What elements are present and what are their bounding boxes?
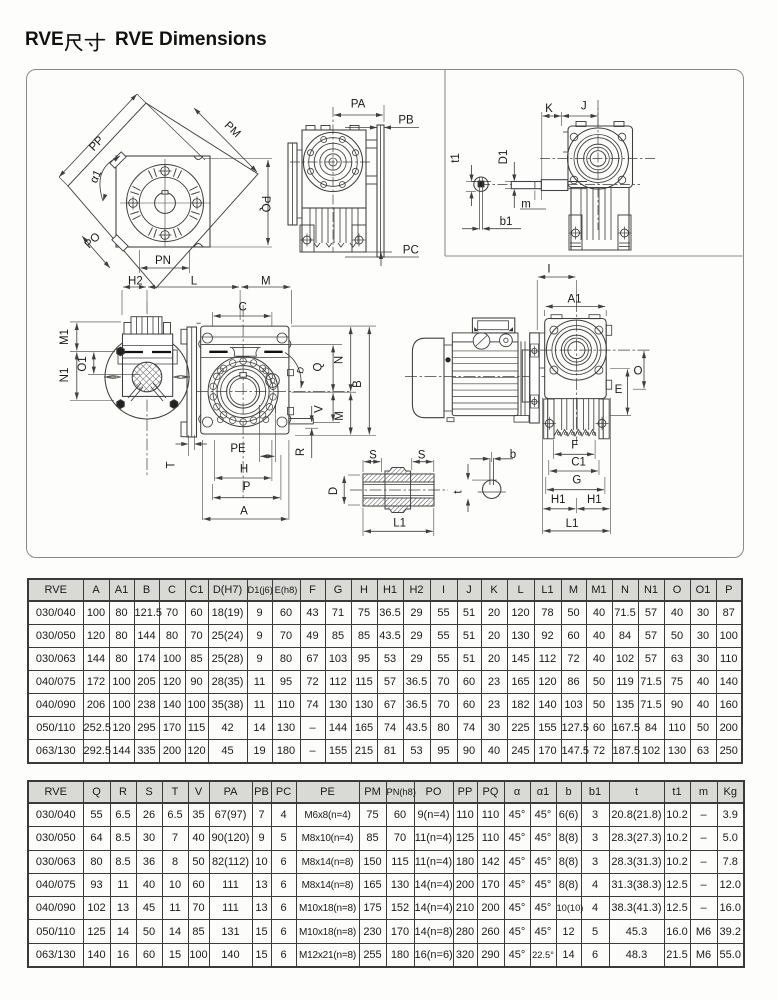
svg-text:M1: M1 [59,329,71,345]
svg-text:H: H [240,464,248,476]
svg-text:L1: L1 [393,518,406,530]
svg-text:D: D [295,365,306,374]
svg-text:M: M [334,411,346,421]
svg-text:D1: D1 [498,150,510,165]
svg-text:PO: PO [83,231,103,251]
svg-text:PN: PN [155,255,171,267]
svg-text:H2: H2 [128,276,143,288]
svg-text:PP: PP [87,134,106,154]
svg-text:L1: L1 [566,518,579,530]
svg-text:t: t [452,490,464,494]
svg-text:M: M [261,276,271,288]
svg-text:R: R [295,448,307,456]
svg-text:D: D [328,487,340,495]
svg-text:F: F [571,439,578,451]
svg-text:O1: O1 [77,356,89,371]
svg-text:S: S [369,450,377,462]
svg-text:G: G [572,475,581,487]
svg-text:PB: PB [398,115,414,127]
svg-text:K: K [545,103,553,115]
svg-text:A: A [240,506,248,518]
svg-text:P: P [243,481,251,493]
svg-text:T: T [166,461,178,468]
svg-text:L: L [191,276,198,288]
svg-text:O: O [634,366,643,378]
svg-text:V: V [313,405,325,413]
svg-text:H1: H1 [551,494,566,506]
svg-text:A1: A1 [567,294,581,306]
svg-text:α1: α1 [88,168,104,185]
svg-text:PA: PA [351,99,366,111]
svg-text:Q: Q [313,362,325,371]
svg-text:PC: PC [403,245,419,257]
svg-text:J: J [581,101,587,113]
svg-text:PM: PM [222,120,243,141]
svg-text:C: C [239,302,247,314]
svg-text:C1: C1 [571,456,586,468]
svg-text:E: E [615,384,623,396]
svg-text:S: S [418,450,426,462]
svg-text:PE: PE [230,443,246,455]
svg-text:t1: t1 [450,153,462,163]
svg-text:H1: H1 [587,494,602,506]
svg-text:I: I [547,264,550,276]
svg-text:B: B [352,380,364,388]
svg-text:PQ: PQ [259,196,271,213]
svg-text:N1: N1 [59,368,71,383]
svg-text:b1: b1 [500,216,513,228]
svg-text:N: N [334,356,346,364]
